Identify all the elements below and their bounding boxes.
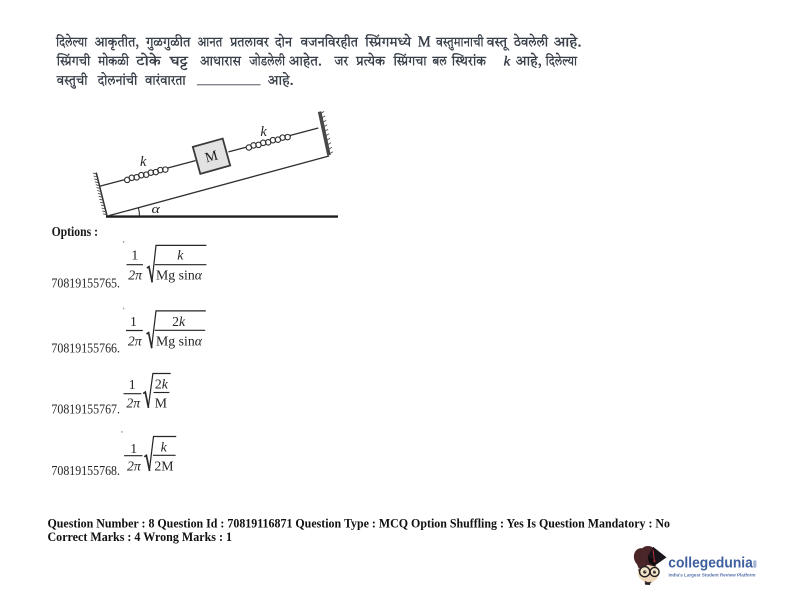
svg-text:α: α bbox=[152, 202, 161, 216]
svg-text:k: k bbox=[177, 247, 184, 262]
svg-text:M: M bbox=[155, 395, 167, 410]
svg-text:2π: 2π bbox=[128, 268, 143, 283]
svg-text:70819155765.: 70819155765. bbox=[51, 276, 120, 291]
svg-text:70819155766.: 70819155766. bbox=[51, 341, 120, 356]
svg-text:1: 1 bbox=[130, 441, 137, 456]
svg-text:2k: 2k bbox=[172, 314, 186, 329]
svg-text:k: k bbox=[260, 124, 267, 140]
svg-text:k: k bbox=[140, 154, 147, 170]
svg-text:2π: 2π bbox=[128, 334, 143, 349]
svg-text:Mg sinα: Mg sinα bbox=[156, 334, 203, 349]
svg-text:Options :: Options : bbox=[52, 224, 98, 239]
svg-text:Mg sinα: Mg sinα bbox=[156, 268, 203, 283]
svg-text:1: 1 bbox=[131, 248, 138, 263]
svg-text:1: 1 bbox=[130, 314, 137, 329]
svg-text:India's Largest Student Review: India's Largest Student Review Platform bbox=[669, 572, 756, 577]
svg-text:collegedunia: collegedunia bbox=[668, 556, 753, 572]
svg-text:1: 1 bbox=[129, 377, 136, 392]
svg-text:2π: 2π bbox=[127, 459, 142, 474]
svg-text:k: k bbox=[161, 440, 168, 455]
svg-text:70819155768.: 70819155768. bbox=[51, 463, 120, 478]
svg-text:2M: 2M bbox=[154, 458, 173, 473]
svg-text:Correct Marks : 4 Wrong Marks: Correct Marks : 4 Wrong Marks : 1 bbox=[48, 529, 233, 544]
svg-text:2k: 2k bbox=[155, 376, 169, 391]
svg-text:2π: 2π bbox=[126, 395, 141, 410]
svg-text:70819155767.: 70819155767. bbox=[51, 401, 120, 416]
